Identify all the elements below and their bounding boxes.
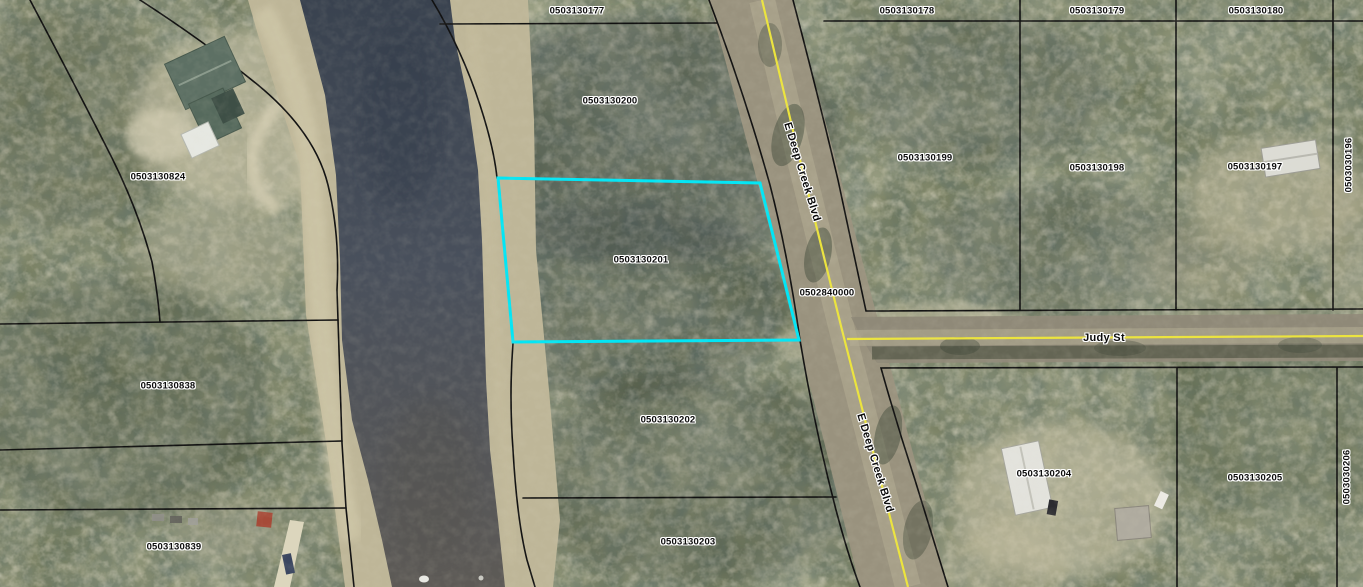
map-canvas[interactable] [0, 0, 1363, 587]
aerial-parcel-map[interactable]: 0503130177050313017805031301790503130180… [0, 0, 1363, 587]
grain-overlay [0, 0, 1363, 587]
